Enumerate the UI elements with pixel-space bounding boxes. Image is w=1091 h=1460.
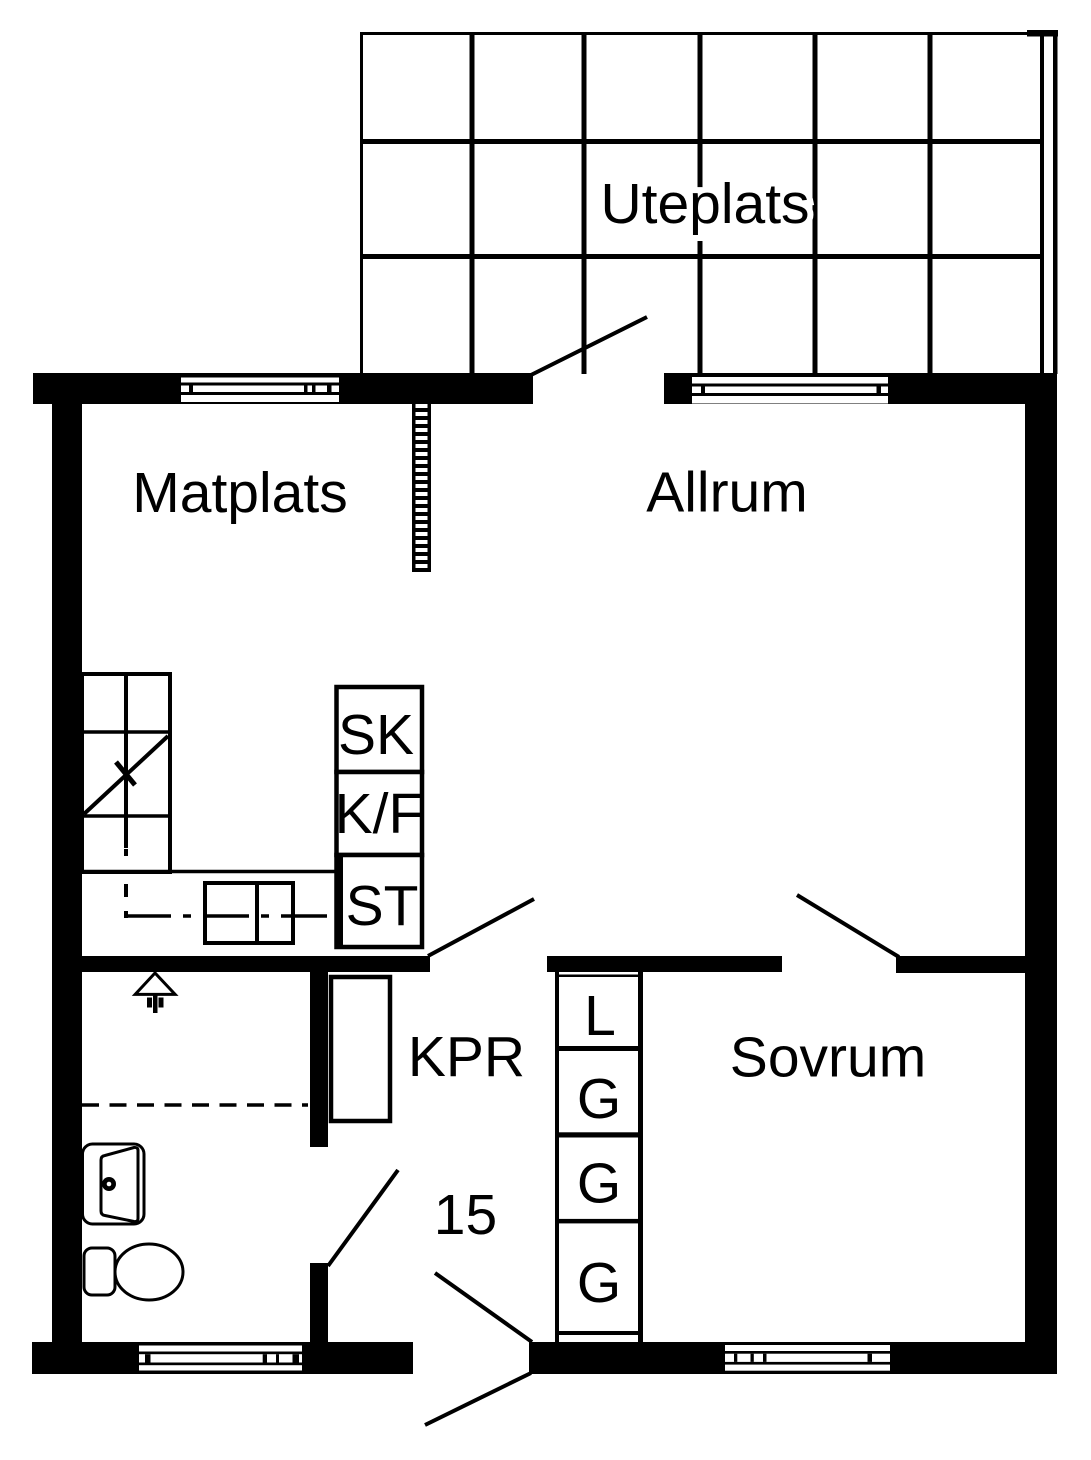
- svg-text:SK: SK: [338, 703, 414, 767]
- svg-text:G: G: [577, 1251, 621, 1315]
- svg-text:Sovrum: Sovrum: [730, 1026, 926, 1090]
- svg-text:Uteplats: Uteplats: [600, 172, 809, 236]
- svg-text:L: L: [584, 984, 616, 1048]
- svg-text:Matplats: Matplats: [132, 461, 347, 525]
- svg-text:G: G: [577, 1151, 621, 1215]
- svg-text:15: 15: [434, 1183, 497, 1247]
- svg-text:G: G: [577, 1067, 621, 1131]
- svg-text:Allrum: Allrum: [646, 461, 808, 525]
- svg-text:ST: ST: [346, 874, 419, 938]
- svg-text:K/F: K/F: [335, 782, 424, 846]
- svg-text:KPR: KPR: [408, 1025, 525, 1089]
